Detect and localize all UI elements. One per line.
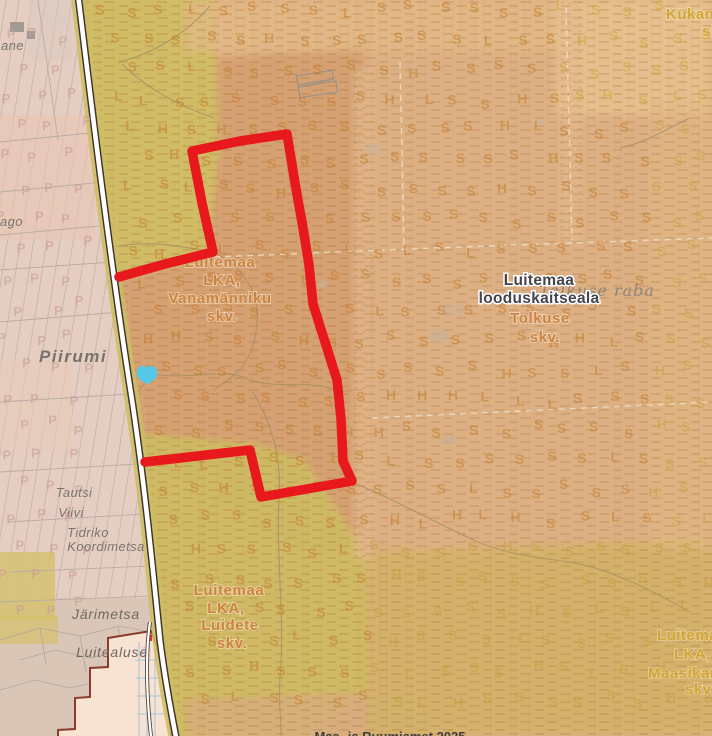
soil-symbol: S — [284, 301, 293, 317]
soil-symbol: S — [263, 576, 272, 592]
soil-symbol: S — [200, 93, 209, 109]
soil-symbol: S — [687, 236, 696, 252]
soil-symbol: L — [292, 627, 301, 643]
soil-symbol: S — [496, 240, 505, 256]
soil-symbol: S — [610, 208, 619, 224]
soil-symbol: S — [219, 3, 228, 19]
soil-symbol: S — [698, 454, 707, 470]
soil-symbol: L — [478, 506, 487, 522]
soil-symbol: S — [621, 603, 630, 619]
soil-symbol: S — [280, 0, 289, 16]
soil-symbol: S — [667, 331, 676, 347]
soil-symbol: S — [392, 274, 401, 290]
soil-symbol: P — [54, 303, 63, 318]
soil-symbol: S — [562, 177, 571, 193]
soil-symbol: S — [266, 209, 275, 225]
soil-symbol: H — [417, 387, 427, 403]
soil-symbol: S — [406, 477, 415, 493]
soil-symbol: S — [401, 544, 410, 560]
soil-symbol: P — [17, 116, 26, 131]
soil-symbol: P — [6, 511, 15, 526]
soil-symbol: P — [74, 181, 83, 196]
soil-symbol: S — [270, 690, 279, 706]
soil-symbol: S — [610, 388, 619, 404]
soil-symbol: S — [448, 627, 457, 643]
soil-symbol: S — [276, 663, 285, 679]
soil-symbol: S — [312, 238, 321, 254]
soil-symbol: S — [373, 481, 382, 497]
soil-symbol: P — [28, 25, 37, 40]
soil-symbol: S — [447, 91, 456, 107]
soil-symbol: S — [138, 215, 147, 231]
soil-symbol: H — [390, 512, 400, 528]
soil-symbol: S — [591, 1, 600, 17]
soil-symbol: S — [557, 420, 566, 436]
soil-symbol: H — [549, 150, 559, 166]
soil-symbol: S — [681, 418, 690, 434]
zone-label-line: skv. — [217, 635, 247, 652]
soil-symbol: S — [417, 568, 426, 584]
soil-symbol: S — [325, 515, 334, 531]
soil-symbol: H — [169, 146, 179, 162]
soil-symbol: S — [596, 238, 605, 254]
soil-symbol: S — [531, 485, 540, 501]
soil-symbol: S — [394, 694, 403, 710]
soil-symbol: S — [494, 57, 503, 73]
soil-symbol: S — [652, 178, 661, 194]
soil-symbol: S — [655, 0, 664, 13]
soil-symbol: S — [455, 573, 464, 589]
soil-symbol: S — [627, 303, 636, 319]
place-label-ago: ago — [0, 214, 23, 229]
soil-symbol: S — [470, 659, 479, 675]
soil-symbol: S — [673, 152, 682, 168]
soil-symbol: S — [438, 183, 447, 199]
soil-symbol: P — [16, 602, 25, 617]
soil-symbol: S — [556, 239, 565, 255]
soil-symbol: S — [546, 515, 555, 531]
soil-symbol: S — [665, 455, 674, 471]
soil-symbol: S — [171, 32, 180, 48]
soil-symbol: S — [470, 0, 479, 16]
soil-symbol: S — [466, 183, 475, 199]
soil-symbol: S — [332, 570, 341, 586]
soil-symbol: S — [261, 389, 270, 405]
soil-symbol: S — [204, 328, 213, 344]
soil-symbol: H — [656, 416, 666, 432]
soil-symbol: S — [684, 305, 693, 321]
soil-symbol: P — [17, 240, 26, 255]
soil-symbol: S — [294, 692, 303, 708]
soil-symbol: H — [386, 387, 396, 403]
soil-symbol: S — [485, 450, 494, 466]
soil-symbol: S — [185, 665, 194, 681]
soil-symbol: S — [361, 266, 370, 282]
soil-symbol: S — [255, 237, 264, 253]
soil-symbol: S — [219, 176, 228, 192]
soil-symbol: S — [642, 209, 651, 225]
soil-symbol: S — [515, 451, 524, 467]
soil-symbol: S — [700, 335, 709, 351]
soil-symbol: S — [312, 61, 321, 77]
soil-symbol: S — [359, 150, 368, 166]
soil-symbol: S — [565, 543, 574, 559]
soil-symbol: S — [173, 386, 182, 402]
soil-symbol: P — [0, 330, 6, 345]
soil-symbol: H — [452, 507, 462, 523]
soil-symbol: S — [369, 537, 378, 553]
soil-symbol: S — [635, 329, 644, 345]
soil-symbol: S — [494, 665, 503, 681]
soil-symbol: S — [390, 148, 399, 164]
soil-symbol: L — [125, 117, 134, 133]
soil-symbol: H — [158, 121, 168, 137]
soil-symbol: S — [153, 1, 162, 17]
soil-symbol: S — [639, 36, 648, 52]
soil-symbol: H — [191, 541, 201, 557]
soil-symbol: H — [249, 657, 259, 673]
soil-symbol: S — [325, 210, 334, 226]
soil-symbol: S — [603, 266, 612, 282]
soil-symbol: S — [233, 153, 242, 169]
zone-label-line: sk — [702, 23, 712, 40]
place-label-luitealuse: Luitealuse — [76, 644, 148, 660]
soil-symbol: S — [478, 568, 487, 584]
soil-symbol: S — [484, 151, 493, 167]
soil-symbol: S — [255, 359, 264, 375]
soil-symbol: S — [403, 0, 412, 13]
soil-symbol: S — [435, 363, 444, 379]
soil-symbol: S — [558, 658, 567, 674]
soil-symbol: L — [123, 177, 132, 193]
soil-symbol: S — [169, 511, 178, 527]
soil-symbol: S — [175, 94, 184, 110]
soil-symbol: L — [139, 92, 148, 108]
soil-symbol: S — [345, 598, 354, 614]
soil-symbol: S — [255, 599, 264, 615]
zone-label-line: LKA, — [674, 646, 711, 663]
soil-symbol: L — [589, 666, 598, 682]
soil-symbol: S — [574, 150, 583, 166]
soil-symbol: S — [642, 510, 651, 526]
soil-symbol: S — [480, 96, 489, 112]
soil-symbol: S — [374, 605, 383, 621]
soil-symbol: S — [327, 94, 336, 110]
soil-symbol: S — [394, 29, 403, 45]
soil-symbol: L — [137, 275, 146, 291]
soil-symbol: S — [652, 62, 661, 78]
soil-symbol: S — [432, 58, 441, 74]
soil-symbol: S — [333, 695, 342, 711]
soil-symbol: S — [696, 147, 705, 163]
soil-symbol: S — [158, 483, 167, 499]
soil-symbol: S — [679, 57, 688, 73]
soil-symbol: L — [556, 0, 565, 13]
soil-symbol: S — [672, 513, 681, 529]
soil-symbol: S — [276, 601, 285, 617]
soil-symbol: S — [329, 632, 338, 648]
soil-symbol: S — [589, 418, 598, 434]
soil-symbol: S — [424, 455, 433, 471]
soil-symbol: S — [144, 30, 153, 46]
soil-symbol: S — [453, 276, 462, 292]
soil-symbol: S — [482, 631, 491, 647]
soil-symbol: L — [480, 388, 489, 404]
soil-symbol: L — [231, 688, 240, 704]
soil-symbol: S — [282, 539, 291, 555]
map-canvas[interactable]: SSSLSSSSLSSSSSSLSSSSSSSSSHSSSSSSLSSHSSSS… — [0, 0, 712, 736]
soil-symbol: L — [376, 303, 385, 319]
soil-symbol: L — [548, 396, 557, 412]
soil-symbol: S — [681, 120, 690, 136]
soil-symbol: S — [672, 215, 681, 231]
soil-symbol: S — [300, 32, 309, 48]
zone-label-line: Luitemaa — [194, 582, 265, 599]
soil-symbol: S — [452, 31, 461, 47]
soil-symbol: S — [581, 571, 590, 587]
place-label-tautsi: Tautsi — [56, 485, 93, 500]
soil-symbol: S — [550, 90, 559, 106]
soil-symbol: S — [379, 62, 388, 78]
soil-symbol: H — [497, 180, 507, 196]
soil-symbol: S — [247, 541, 256, 557]
soil-symbol: S — [596, 538, 605, 554]
soil-symbol: S — [559, 476, 568, 492]
soil-symbol: L — [344, 240, 353, 256]
soil-symbol: L — [188, 1, 197, 17]
soil-symbol: S — [269, 449, 278, 465]
soil-symbol: S — [185, 598, 194, 614]
soil-symbol: S — [402, 418, 411, 434]
soil-symbol: S — [469, 422, 478, 438]
soil-symbol: S — [479, 269, 488, 285]
soil-symbol: L — [469, 480, 478, 496]
soil-symbol: S — [466, 60, 475, 76]
soil-symbol: S — [363, 627, 372, 643]
soil-symbol: S — [377, 122, 386, 138]
soil-symbol: H — [299, 332, 309, 348]
soil-symbol: H — [217, 121, 227, 137]
soil-symbol: P — [20, 473, 29, 488]
soil-symbol: H — [448, 387, 458, 403]
soil-symbol: S — [144, 147, 153, 163]
soil-symbol: S — [605, 630, 614, 646]
soil-symbol: H — [388, 634, 398, 650]
soil-symbol: S — [620, 358, 629, 374]
soil-symbol: S — [154, 422, 163, 438]
soil-symbol: S — [309, 2, 318, 18]
soil-symbol: L — [425, 91, 434, 107]
soil-symbol: S — [270, 92, 279, 108]
soil-symbol: S — [633, 695, 642, 711]
soil-symbol: S — [403, 359, 412, 375]
soil-symbol: S — [308, 663, 317, 679]
soil-symbol: S — [441, 0, 450, 15]
soil-symbol: S — [664, 391, 673, 407]
soil-symbol: P — [45, 238, 54, 253]
soil-symbol: P — [31, 566, 40, 581]
soil-symbol: S — [346, 57, 355, 73]
soil-symbol: S — [575, 87, 584, 103]
soil-symbol: L — [680, 597, 689, 613]
soil-symbol: S — [295, 452, 304, 468]
soil-symbol: S — [609, 27, 618, 43]
soil-symbol: S — [190, 237, 199, 253]
soil-symbol: S — [673, 574, 682, 590]
soil-symbol: S — [376, 366, 385, 382]
soil-symbol: H — [511, 509, 521, 525]
soil-symbol: P — [21, 183, 30, 198]
soil-symbol: S — [357, 31, 366, 47]
soil-symbol: S — [419, 149, 428, 165]
soil-symbol: S — [441, 663, 450, 679]
soil-symbol: H — [374, 424, 384, 440]
soil-symbol: L — [534, 117, 543, 133]
attribution: Maa- ja Ruumiamet 2025 — [314, 729, 465, 736]
soil-symbol: H — [602, 87, 612, 103]
soil-symbol: S — [370, 659, 379, 675]
soil-symbol: S — [356, 389, 365, 405]
soil-symbol: P — [38, 88, 47, 103]
soil-symbol: S — [377, 0, 386, 15]
soil-symbol: S — [620, 119, 629, 135]
soil-symbol: H — [648, 484, 658, 500]
place-label-ane: ane — [1, 38, 24, 53]
soil-symbol: S — [638, 570, 647, 586]
soil-symbol: S — [509, 147, 518, 163]
soil-symbol: S — [308, 117, 317, 133]
soil-symbol: S — [187, 122, 196, 138]
soil-symbol: S — [575, 215, 584, 231]
soil-symbol: L — [611, 508, 620, 524]
soil-symbol: H — [276, 185, 286, 201]
soil-symbol: H — [704, 575, 712, 591]
soil-symbol: P — [3, 274, 12, 289]
place-label-tidriko: Tidriko — [67, 525, 109, 540]
soil-symbol: H — [143, 331, 153, 347]
soil-symbol: P — [68, 568, 77, 583]
zone-label-line: LKA, — [203, 272, 240, 289]
soil-symbol: S — [265, 269, 274, 285]
soil-symbol: S — [541, 632, 550, 648]
soil-symbol: S — [478, 209, 487, 225]
soil-symbol: H — [502, 537, 512, 553]
zone-label-line: skv. — [530, 329, 560, 346]
soil-symbol: S — [332, 32, 341, 48]
soil-symbol: P — [4, 392, 13, 407]
soil-symbol: P — [20, 417, 29, 432]
soil-symbol: P — [1, 146, 10, 161]
zone-label-line: Tolkuse — [510, 310, 570, 327]
soil-symbol: S — [573, 390, 582, 406]
soil-symbol: S — [643, 633, 652, 649]
soil-symbol: S — [222, 662, 231, 678]
soil-symbol: P — [50, 541, 59, 556]
soil-symbol: S — [128, 58, 137, 74]
soil-symbol: P — [51, 63, 60, 78]
soil-symbol: P — [70, 393, 79, 408]
soil-symbol: L — [387, 453, 396, 469]
soil-symbol: S — [622, 59, 631, 75]
soil-symbol: S — [294, 575, 303, 591]
soil-symbol: S — [435, 239, 444, 255]
soil-symbol: L — [339, 540, 348, 556]
soil-symbol: L — [343, 4, 352, 20]
soil-symbol: S — [300, 152, 309, 168]
soil-symbol: P — [30, 271, 39, 286]
soil-symbol: S — [340, 118, 349, 134]
soil-symbol: S — [283, 62, 292, 78]
soil-symbol: S — [361, 209, 370, 225]
soil-symbol: S — [638, 92, 647, 108]
soil-symbol: S — [559, 59, 568, 75]
soil-symbol: S — [190, 480, 199, 496]
soil-symbol: S — [436, 545, 445, 561]
soil-symbol: S — [250, 65, 259, 81]
soil-symbol: S — [455, 455, 464, 471]
soil-symbol: S — [295, 513, 304, 529]
soil-symbol: H — [500, 117, 510, 133]
soil-symbol: S — [255, 418, 264, 434]
soil-symbol: P — [64, 144, 73, 159]
soil-symbol: L — [518, 629, 527, 645]
soil-symbol: S — [277, 357, 286, 373]
soil-symbol: S — [224, 64, 233, 80]
soil-symbol: S — [623, 238, 632, 254]
soil-symbol: L — [184, 178, 193, 194]
soil-symbol: S — [527, 364, 536, 380]
soil-symbol: P — [47, 603, 56, 618]
soil-symbol: H — [529, 603, 539, 619]
soil-symbol: S — [534, 416, 543, 432]
soil-symbol: P — [70, 446, 79, 461]
soil-symbol: S — [324, 393, 333, 409]
soil-symbol: S — [355, 447, 364, 463]
soil-symbol: S — [201, 153, 210, 169]
soil-symbol: S — [417, 27, 426, 43]
place-label-jarimetsa: Järimetsa — [71, 606, 140, 622]
soil-symbol: S — [503, 485, 512, 501]
title-line: Luitemaa — [504, 272, 575, 289]
soil-symbol: S — [511, 574, 520, 590]
zone-label-line: Vanamänniku — [168, 290, 271, 307]
soil-symbol: P — [67, 85, 76, 100]
soil-symbol: L — [702, 510, 711, 526]
soil-symbol: S — [416, 627, 425, 643]
soil-symbol: S — [456, 150, 465, 166]
soil-symbol: S — [217, 540, 226, 556]
soil-symbol: S — [621, 541, 630, 557]
soil-symbol: H — [655, 362, 665, 378]
soil-symbol: S — [377, 184, 386, 200]
soil-symbol: S — [468, 357, 477, 373]
soil-symbol: S — [449, 206, 458, 222]
soil-symbol: S — [682, 540, 691, 556]
soil-symbol: H — [264, 30, 274, 46]
soil-symbol: S — [262, 515, 271, 531]
soil-symbol: P — [37, 506, 46, 521]
place-label-viivi: Viivi — [58, 505, 84, 520]
soil-symbol: S — [298, 394, 307, 410]
soil-symbol: S — [267, 156, 276, 172]
soil-symbol: S — [298, 94, 307, 110]
soil-symbol: H — [666, 689, 676, 705]
soil-symbol: S — [127, 5, 136, 21]
soil-symbol: S — [432, 424, 441, 440]
soil-symbol: S — [236, 32, 245, 48]
soil-symbol: S — [433, 603, 442, 619]
soil-symbol: S — [285, 421, 294, 437]
